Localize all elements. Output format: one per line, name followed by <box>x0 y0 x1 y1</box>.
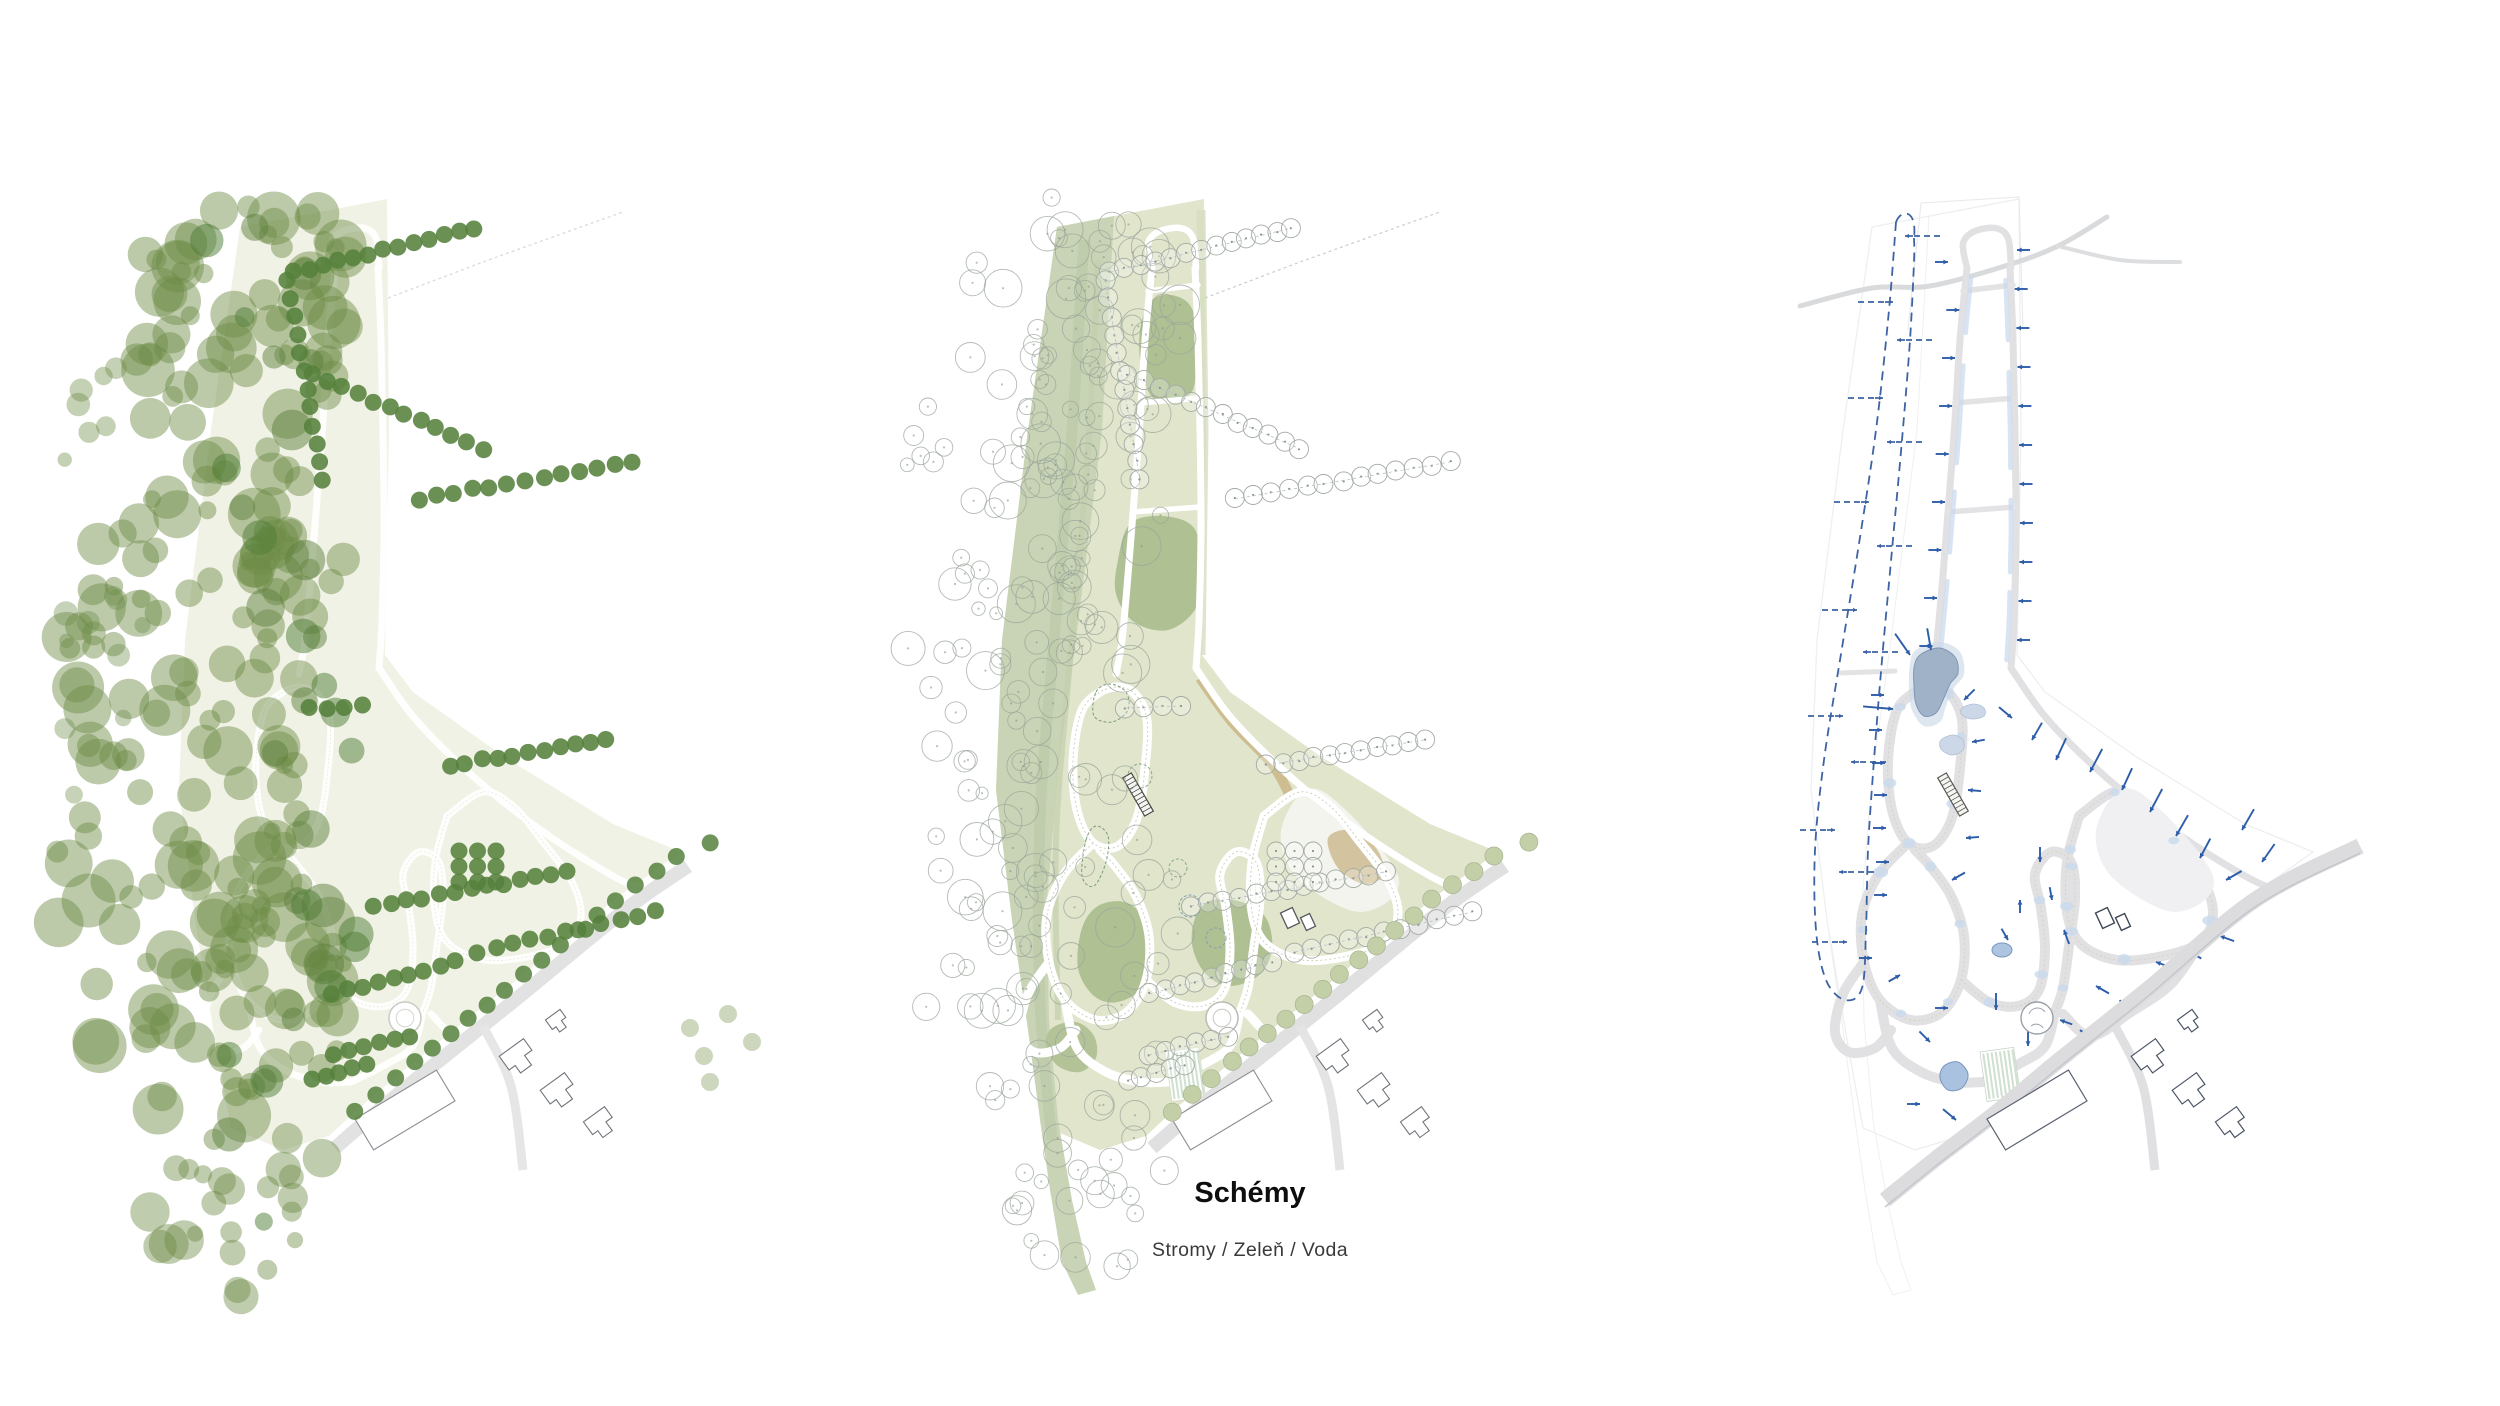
svg-text:Stromy / Zeleň / Voda: Stromy / Zeleň / Voda <box>1152 1239 1348 1261</box>
svg-text:Schémy: Schémy <box>1194 1177 1305 1209</box>
